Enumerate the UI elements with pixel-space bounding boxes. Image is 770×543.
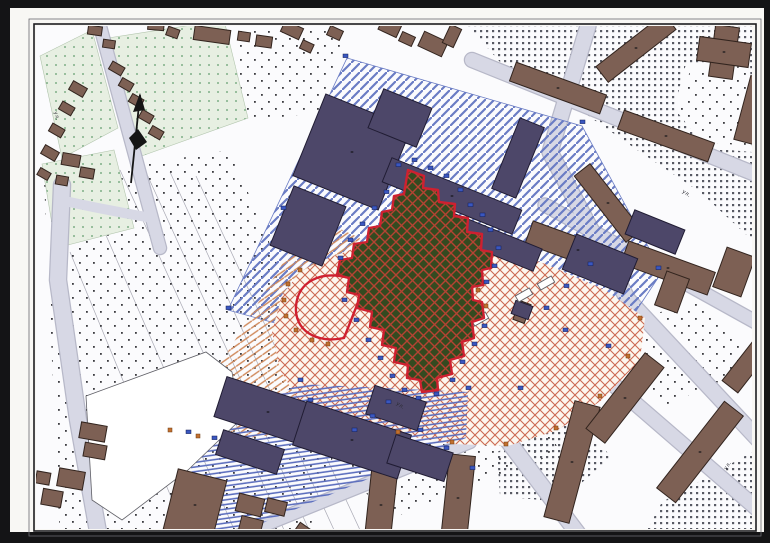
scanned-site-plan-page: ул. ул. ул. ул. — [0, 0, 770, 543]
map-content: ул. ул. ул. ул. — [35, 14, 770, 543]
site-plan-map: ул. ул. ул. ул. — [0, 0, 770, 543]
